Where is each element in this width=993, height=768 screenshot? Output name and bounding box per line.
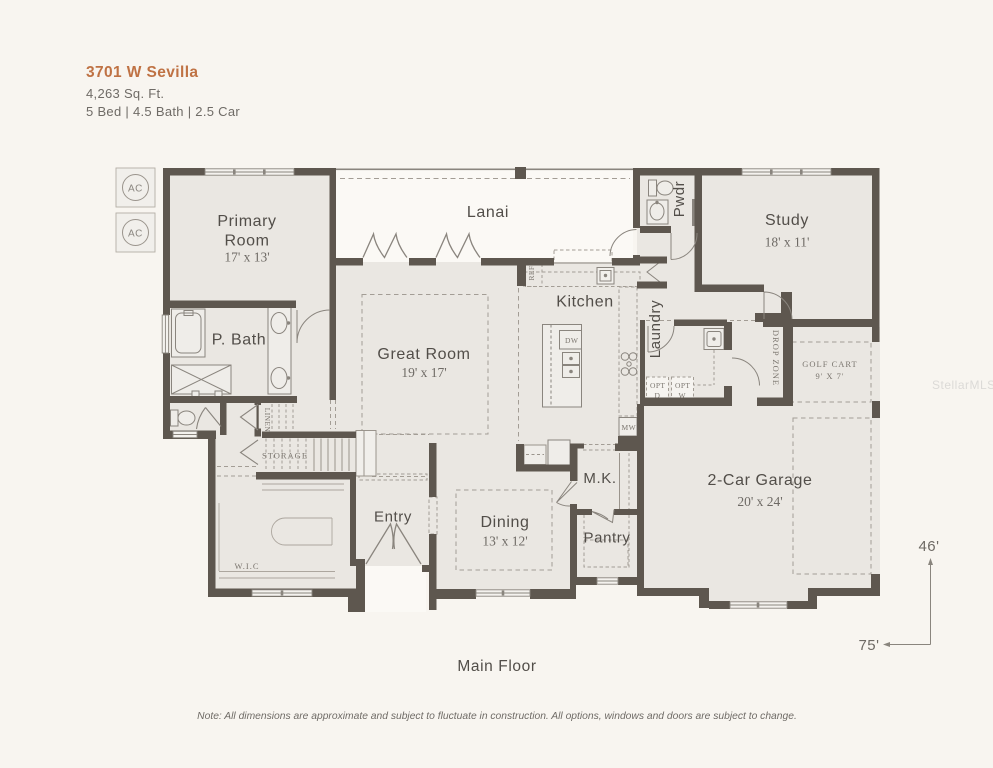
svg-text:Study: Study — [765, 212, 809, 229]
svg-text:Kitchen: Kitchen — [556, 294, 614, 311]
svg-text:Laundry: Laundry — [647, 300, 664, 358]
svg-text:OPT: OPT — [650, 381, 665, 390]
svg-text:AC: AC — [128, 229, 143, 240]
svg-text:LINEN: LINEN — [263, 408, 272, 433]
svg-text:46': 46' — [918, 538, 939, 555]
svg-text:4,263 Sq. Ft.: 4,263 Sq. Ft. — [86, 86, 164, 101]
svg-text:Room: Room — [224, 233, 269, 250]
svg-text:STORAGE: STORAGE — [262, 451, 308, 461]
svg-text:Primary: Primary — [217, 213, 276, 230]
svg-text:5 Bed | 4.5 Bath | 2.5 Car: 5 Bed | 4.5 Bath | 2.5 Car — [86, 104, 240, 119]
svg-text:Main Floor: Main Floor — [457, 658, 536, 675]
svg-text:9' X 7': 9' X 7' — [816, 371, 845, 381]
svg-text:2-Car Garage: 2-Car Garage — [707, 472, 812, 489]
svg-text:Entry: Entry — [374, 509, 412, 526]
svg-text:AC: AC — [128, 184, 143, 195]
svg-text:Dining: Dining — [481, 514, 530, 531]
svg-text:W.I.C: W.I.C — [235, 561, 260, 571]
svg-text:18' x 11': 18' x 11' — [765, 235, 810, 250]
svg-text:Note: All dimensions are appro: Note: All dimensions are approximate and… — [197, 711, 797, 722]
svg-text:Great Room: Great Room — [377, 346, 470, 363]
svg-text:MW: MW — [622, 423, 637, 432]
svg-text:P. Bath: P. Bath — [212, 332, 267, 349]
svg-text:REF: REF — [527, 266, 536, 281]
svg-text:OPT: OPT — [675, 381, 690, 390]
svg-text:Pwdr: Pwdr — [671, 181, 688, 218]
svg-text:17' x 13': 17' x 13' — [224, 250, 269, 265]
svg-text:19' x 17': 19' x 17' — [401, 365, 446, 380]
svg-text:3701 W Sevilla: 3701 W Sevilla — [86, 64, 198, 81]
svg-text:75': 75' — [858, 637, 879, 654]
svg-text:Pantry: Pantry — [584, 530, 631, 547]
svg-text:20' x 24': 20' x 24' — [737, 494, 782, 509]
svg-text:DROP ZONE: DROP ZONE — [771, 330, 781, 386]
svg-text:GOLF CART: GOLF CART — [802, 359, 857, 369]
svg-text:M.K.: M.K. — [583, 470, 616, 487]
svg-text:StellarMLS: StellarMLS — [932, 378, 993, 392]
svg-text:DW: DW — [565, 336, 579, 345]
svg-text:Lanai: Lanai — [467, 204, 509, 221]
svg-text:13' x 12': 13' x 12' — [482, 534, 527, 549]
